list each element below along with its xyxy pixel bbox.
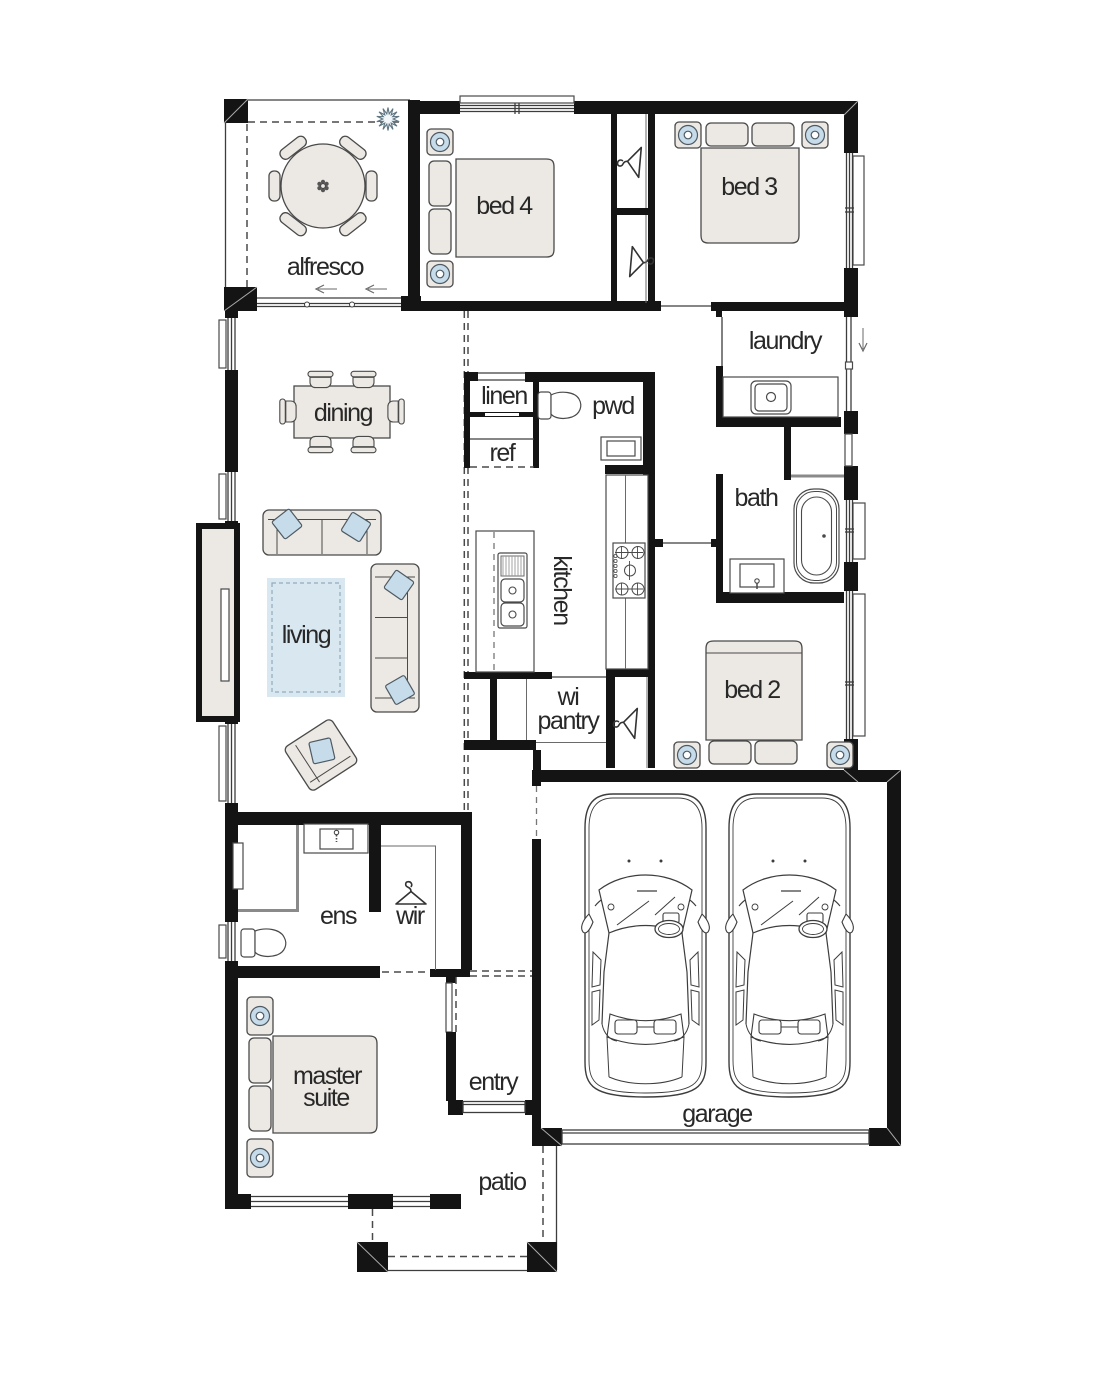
svg-text:wir: wir [395, 902, 425, 930]
svg-text:bed 2: bed 2 [724, 676, 780, 704]
svg-text:linen: linen [481, 382, 527, 410]
svg-text:bed 3: bed 3 [721, 173, 777, 201]
svg-text:suite: suite [303, 1084, 349, 1112]
svg-text:garage: garage [682, 1100, 752, 1128]
svg-text:living: living [282, 621, 331, 649]
svg-text:bed 4: bed 4 [476, 192, 533, 220]
svg-text:dining: dining [314, 399, 373, 427]
svg-text:ens: ens [320, 902, 357, 930]
svg-text:alfresco: alfresco [287, 253, 364, 281]
svg-text:ref: ref [490, 439, 516, 467]
svg-text:laundry: laundry [749, 327, 823, 355]
svg-text:pantry: pantry [537, 707, 600, 735]
svg-text:pwd: pwd [592, 392, 634, 420]
svg-text:patio: patio [478, 1168, 526, 1196]
svg-text:entry: entry [469, 1068, 519, 1096]
svg-text:kitchen: kitchen [548, 555, 576, 625]
svg-text:bath: bath [734, 484, 778, 512]
